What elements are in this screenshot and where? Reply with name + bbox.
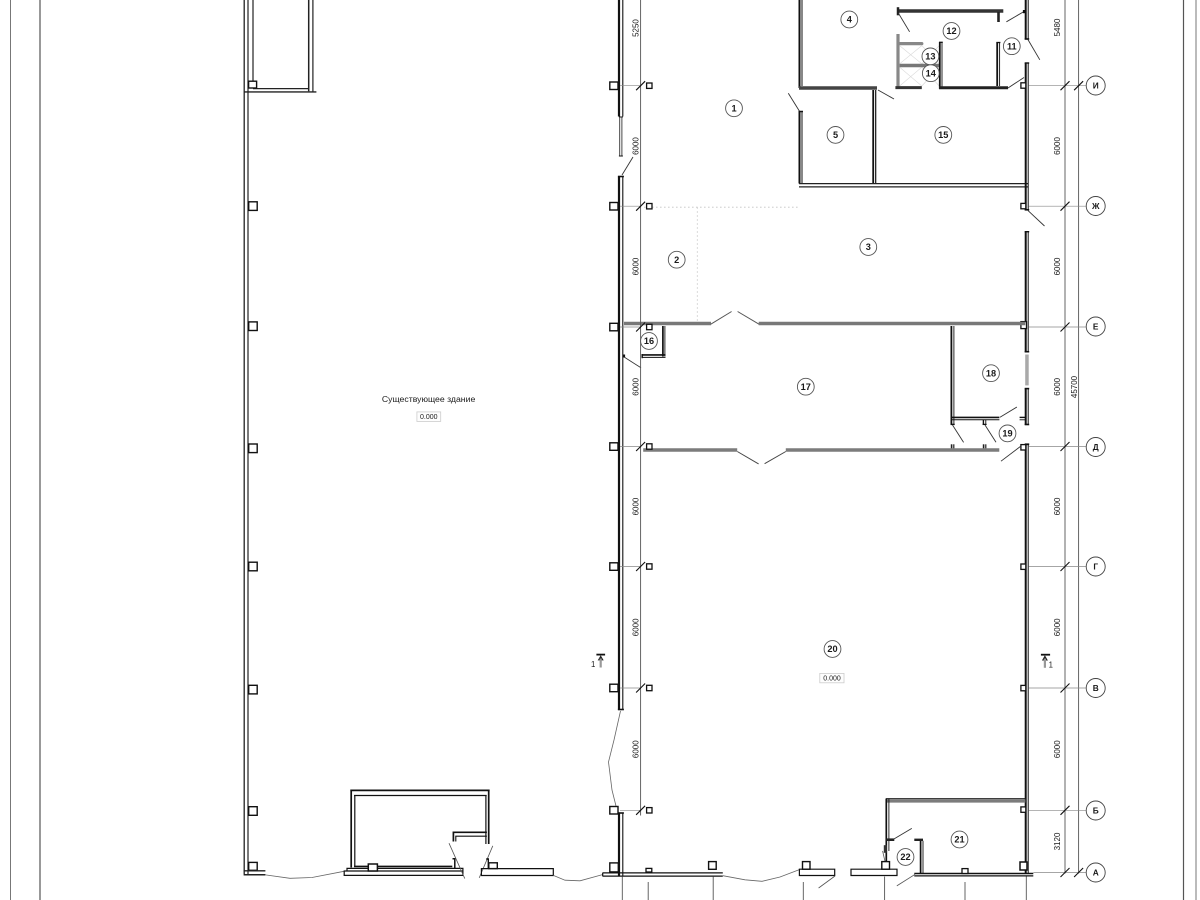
- svg-text:16: 16: [644, 336, 654, 346]
- svg-text:4: 4: [847, 15, 853, 25]
- svg-text:1: 1: [731, 104, 736, 114]
- svg-text:13: 13: [925, 52, 935, 62]
- svg-text:6000: 6000: [1053, 137, 1062, 155]
- svg-text:21: 21: [954, 835, 964, 845]
- svg-text:18: 18: [986, 368, 996, 378]
- svg-text:1: 1: [1049, 661, 1053, 670]
- svg-text:19: 19: [1002, 429, 1012, 439]
- svg-text:3120: 3120: [1053, 832, 1062, 850]
- svg-text:6000: 6000: [1053, 377, 1062, 395]
- svg-text:В: В: [1093, 683, 1099, 693]
- svg-text:17: 17: [801, 382, 811, 392]
- svg-text:6000: 6000: [632, 740, 641, 758]
- svg-text:5250: 5250: [632, 19, 641, 37]
- svg-text:15: 15: [938, 130, 948, 140]
- svg-text:Д: Д: [1093, 442, 1099, 452]
- svg-text:6000: 6000: [632, 497, 641, 515]
- svg-text:20: 20: [827, 644, 837, 654]
- svg-text:12: 12: [946, 26, 956, 36]
- svg-text:6000: 6000: [632, 377, 641, 395]
- svg-text:Г: Г: [1093, 562, 1098, 572]
- svg-text:2: 2: [674, 255, 679, 265]
- svg-text:3: 3: [866, 242, 871, 252]
- svg-text:0.000: 0.000: [823, 676, 841, 683]
- svg-text:0.000: 0.000: [420, 414, 438, 421]
- svg-text:5: 5: [833, 130, 838, 140]
- svg-text:6000: 6000: [1053, 497, 1062, 515]
- svg-text:6000: 6000: [1053, 740, 1062, 758]
- svg-text:Б: Б: [1093, 806, 1099, 816]
- svg-text:6000: 6000: [632, 137, 641, 155]
- svg-text:А: А: [1093, 868, 1099, 878]
- svg-text:45700: 45700: [1070, 375, 1079, 398]
- svg-text:6000: 6000: [632, 618, 641, 636]
- svg-text:14: 14: [926, 68, 937, 78]
- svg-text:Существующее здание: Существующее здание: [382, 394, 476, 404]
- svg-text:22: 22: [900, 852, 910, 862]
- svg-text:5480: 5480: [1053, 18, 1062, 36]
- svg-text:И: И: [1093, 81, 1099, 91]
- svg-text:6000: 6000: [1053, 618, 1062, 636]
- svg-text:6000: 6000: [1053, 257, 1062, 275]
- svg-text:1: 1: [591, 660, 595, 669]
- svg-text:11: 11: [1007, 41, 1017, 51]
- svg-text:6000: 6000: [632, 257, 641, 275]
- svg-text:Е: Е: [1093, 322, 1099, 332]
- svg-text:Ж: Ж: [1091, 201, 1100, 211]
